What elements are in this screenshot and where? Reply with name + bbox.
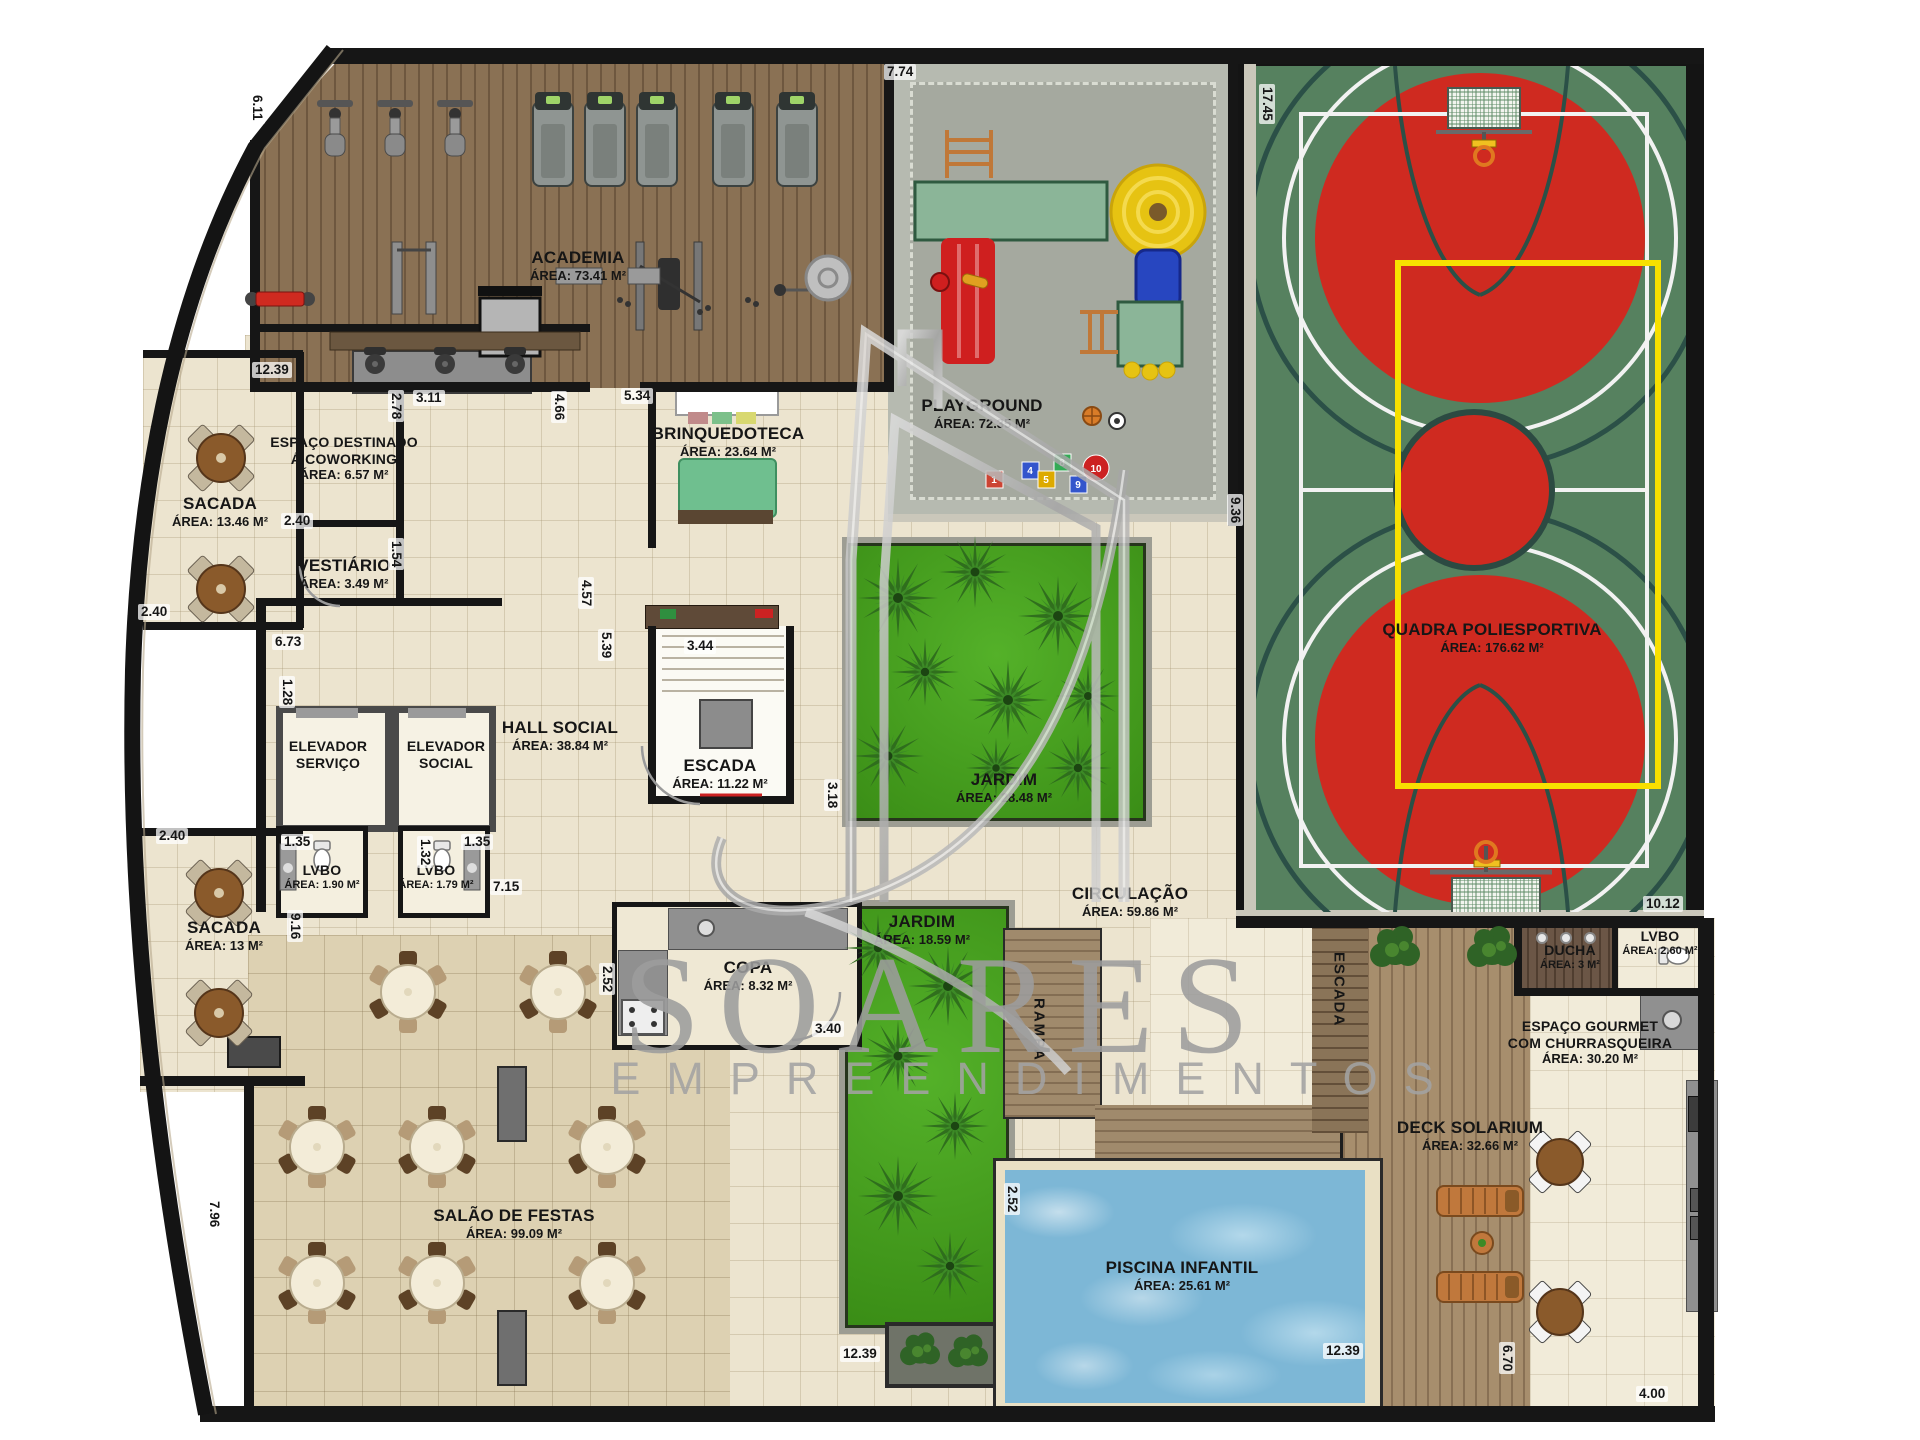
rampa-floor [1003, 928, 1102, 1119]
dimension-label: 7.15 [490, 879, 522, 895]
dimension-label: 4.66 [551, 391, 567, 423]
room-name: VESTIÁRIO [297, 556, 390, 576]
sofa-base [678, 510, 773, 524]
dimension-label: 3.11 [413, 390, 445, 406]
room-name: HALL SOCIAL [502, 718, 618, 738]
dimension-label: 17.45 [1259, 84, 1275, 124]
room-area: ÁREA: 176.62 M² [1382, 640, 1601, 655]
room-name: PLAYGROUND [921, 396, 1042, 416]
dimension-label: 2.52 [599, 963, 615, 995]
dimension-label: 10.12 [1643, 896, 1683, 912]
dimension-label: 12.39 [1323, 1343, 1363, 1359]
room-name: SALÃO DE FESTAS [433, 1206, 594, 1226]
room-name: ESPAÇO DESTINADO [270, 434, 418, 451]
dimension-label: 3.18 [824, 779, 840, 811]
room-name: LVBO [1622, 928, 1697, 945]
dimension-label: 6.73 [272, 634, 304, 650]
room-label-brinquedoteca: BRINQUEDOTECA ÁREA: 23.64 M² [652, 424, 805, 459]
dimension-label: 1.35 [281, 834, 313, 850]
room-label-sacada-2: SACADA ÁREA: 13 M² [185, 918, 263, 953]
wall-coworking-strip [250, 324, 590, 332]
dimension-label: 4.57 [578, 577, 594, 609]
room-name: PISCINA INFANTIL [1106, 1258, 1259, 1278]
room-label-lvbo-2: LVBO ÁREA: 1.79 M² [398, 862, 473, 891]
dimension-label: 1.35 [461, 834, 493, 850]
room-area: ÁREA: 23.64 M² [652, 444, 805, 459]
dimension-label: 2.40 [138, 604, 170, 620]
dimension-label: 9.16 [287, 910, 303, 942]
room-label-salao: SALÃO DE FESTAS ÁREA: 99.09 M² [433, 1206, 594, 1241]
room-name: JARDIM [956, 770, 1052, 790]
dimension-label: 3.40 [812, 1021, 844, 1037]
room-name: ESPAÇO GOURMET [1508, 1018, 1672, 1035]
room-label-deck: DECK SOLARIUM ÁREA: 32.66 M² [1397, 1118, 1543, 1153]
room-area: ÁREA: 73.41 M² [530, 268, 626, 283]
room-name-2: SERVIÇO [289, 755, 367, 772]
room-label-piscina: PISCINA INFANTIL ÁREA: 25.61 M² [1106, 1258, 1259, 1293]
room-name: DUCHA [1540, 942, 1600, 959]
room-name: SACADA [185, 918, 263, 938]
playground-curb [888, 514, 1236, 522]
room-area: ÁREA: 2.60 M² [1622, 945, 1697, 958]
dimension-label: 1.28 [279, 676, 295, 708]
room-name: DECK SOLARIUM [1397, 1118, 1543, 1138]
room-label-lvbo-3: LVBO ÁREA: 2.60 M² [1622, 928, 1697, 957]
wall-bottom [200, 1406, 1715, 1422]
wall-ducha-bottom [1514, 988, 1704, 996]
room-label-copa: COPA ÁREA: 8.32 M² [704, 958, 793, 993]
facade-gap [178, 628, 258, 832]
room-area: ÁREA: 38.84 M² [502, 738, 618, 753]
room-name: CIRCULAÇÃO [1072, 884, 1188, 904]
room-name: LVBO [398, 862, 473, 879]
room-name: LVBO [284, 862, 359, 879]
counter-toy-green [660, 609, 676, 619]
dimension-label: 2.40 [281, 513, 313, 529]
wall-academia-bottom-2 [640, 382, 890, 392]
counter-toy-red [755, 609, 773, 618]
room-area: ÁREA: 8.32 M² [704, 978, 793, 993]
room-name: COPA [704, 958, 793, 978]
sacada-1-floor [143, 352, 303, 630]
wall-core-left [256, 598, 266, 912]
room-label-sacada-1: SACADA ÁREA: 13.46 M² [172, 494, 268, 529]
wall-brinquedoteca-left [648, 388, 656, 548]
dimension-label: 2.52 [1004, 1183, 1020, 1215]
room-area: ÁREA: 32.66 M² [1397, 1138, 1543, 1153]
quadra-court [1256, 66, 1686, 912]
toy-block-green [712, 412, 732, 424]
room-name-2: Á COWORKING [270, 451, 418, 468]
room-area: ÁREA: 59.86 M² [1072, 904, 1188, 919]
dimension-label: 6.70 [1499, 1342, 1515, 1374]
room-area: ÁREA: 1.90 M² [284, 879, 359, 892]
dimension-label: 9.36 [1227, 494, 1243, 526]
dimension-label: 12.39 [252, 362, 292, 378]
jardim-2 [845, 906, 1009, 1328]
wall-ducha-left [1514, 918, 1522, 994]
wall-top [330, 48, 1704, 64]
room-area: ÁREA: 13 M² [185, 938, 263, 953]
room-name: ELEVADOR [289, 738, 367, 755]
wall-playground-quadra [1228, 58, 1238, 526]
room-area: ÁREA: 28.48 M² [956, 790, 1052, 805]
wall-sacada1-bottom [143, 622, 303, 630]
planter-box [885, 1322, 1008, 1388]
wall-sacada2-bottom [140, 1076, 305, 1086]
room-label-ducha: DUCHA ÁREA: 3 M² [1540, 942, 1600, 971]
room-area: ÁREA: 72.35 M² [921, 416, 1042, 431]
room-label-hall-social: HALL SOCIAL ÁREA: 38.84 M² [502, 718, 618, 753]
room-area: ÁREA: 1.79 M² [398, 879, 473, 892]
room-label-rampa: RAMPA [1030, 998, 1048, 1062]
wall-escada-bottom [648, 796, 794, 804]
wall-escada-right [786, 626, 794, 804]
room-label-gourmet: ESPAÇO GOURMET COM CHURRASQUEIRA ÁREA: 3… [1508, 1018, 1672, 1066]
sofa [678, 458, 777, 518]
dimension-label: 5.34 [621, 388, 653, 404]
salao-pillar-bottom [497, 1310, 527, 1386]
quadra-bottom-wall [1236, 916, 1704, 928]
room-name: ESCADA [672, 756, 767, 776]
room-name: ESCADA [1330, 952, 1348, 1027]
room-name: QUADRA POLIESPORTIVA [1382, 620, 1601, 640]
room-area: ÁREA: 11.22 M² [672, 776, 767, 791]
room-label-elevador-servico: ELEVADOR SERVIÇO [289, 738, 367, 771]
room-area: ÁREA: 30.20 M² [1508, 1051, 1672, 1066]
dimension-label: 7.74 [884, 64, 916, 80]
academia-floor [250, 58, 890, 388]
dimension-label: 7.96 [206, 1198, 222, 1230]
room-name: SACADA [172, 494, 268, 514]
room-label-escada: ESCADA ÁREA: 11.22 M² [672, 756, 767, 791]
wall-escada-left [648, 626, 656, 804]
room-label-vestiario: VESTIÁRIO ÁREA: 3.49 M² [297, 556, 390, 591]
salao-pillar-top [497, 1066, 527, 1142]
room-area: ÁREA: 25.61 M² [1106, 1278, 1259, 1293]
wall-sacada1-top [143, 350, 303, 358]
playground-inner [910, 82, 1216, 500]
wall-hall-top [256, 598, 502, 606]
dimension-label: 5.39 [598, 629, 614, 661]
copa-counter-left [618, 950, 668, 1036]
room-label-coworking: ESPAÇO DESTINADO Á COWORKING ÁREA: 6.57 … [270, 434, 418, 482]
room-label-quadra: QUADRA POLIESPORTIVA ÁREA: 176.62 M² [1382, 620, 1601, 655]
wall-ducha-lvbo [1612, 918, 1618, 994]
room-name: RAMPA [1030, 998, 1048, 1062]
dimension-label: 1.32 [417, 836, 433, 868]
dimension-label: 4.00 [1636, 1386, 1668, 1402]
room-label-academia: ACADEMIA ÁREA: 73.41 M² [530, 248, 626, 283]
copa-counter-top [668, 908, 848, 950]
room-area: ÁREA: 3 M² [1540, 959, 1600, 972]
room-name: ELEVADOR [407, 738, 485, 755]
dimension-label: 2.78 [388, 390, 404, 422]
room-name: BRINQUEDOTECA [652, 424, 805, 444]
room-label-jardim-1: JARDIM ÁREA: 28.48 M² [956, 770, 1052, 805]
room-name: JARDIM [874, 912, 970, 932]
room-area: ÁREA: 99.09 M² [433, 1226, 594, 1241]
room-area: ÁREA: 3.49 M² [297, 576, 390, 591]
room-label-jardim-2: JARDIM ÁREA: 18.59 M² [874, 912, 970, 947]
toy-block-yellow [736, 412, 756, 424]
salao-entry-wall [227, 1036, 281, 1068]
room-name-2: COM CHURRASQUEIRA [1508, 1035, 1672, 1052]
room-area: ÁREA: 13.46 M² [172, 514, 268, 529]
dimension-label: 12.39 [840, 1346, 880, 1362]
room-name: ACADEMIA [530, 248, 626, 268]
room-label-escada-externa: ESCADA [1330, 952, 1348, 1027]
wall-academia-playground [884, 58, 894, 392]
room-area: ÁREA: 18.59 M² [874, 932, 970, 947]
room-area: ÁREA: 6.57 M² [270, 467, 418, 482]
room-label-lvbo-1: LVBO ÁREA: 1.90 M² [284, 862, 359, 891]
room-label-playground: PLAYGROUND ÁREA: 72.35 M² [921, 396, 1042, 431]
room-name-2: SOCIAL [407, 755, 485, 772]
dimension-label: 2.40 [156, 828, 188, 844]
room-label-circulacao: CIRCULAÇÃO ÁREA: 59.86 M² [1072, 884, 1188, 919]
dimension-label: 1.54 [388, 538, 404, 570]
wall-salao-left [244, 1086, 254, 1410]
room-label-elevador-social: ELEVADOR SOCIAL [407, 738, 485, 771]
dimension-label: 6.11 [249, 92, 265, 124]
floor-plan: 1 4 5 8 9 10 [0, 0, 1920, 1440]
toy-block-pink [688, 412, 708, 424]
dimension-label: 3.44 [684, 638, 716, 654]
quadra-walkway [1244, 58, 1256, 916]
